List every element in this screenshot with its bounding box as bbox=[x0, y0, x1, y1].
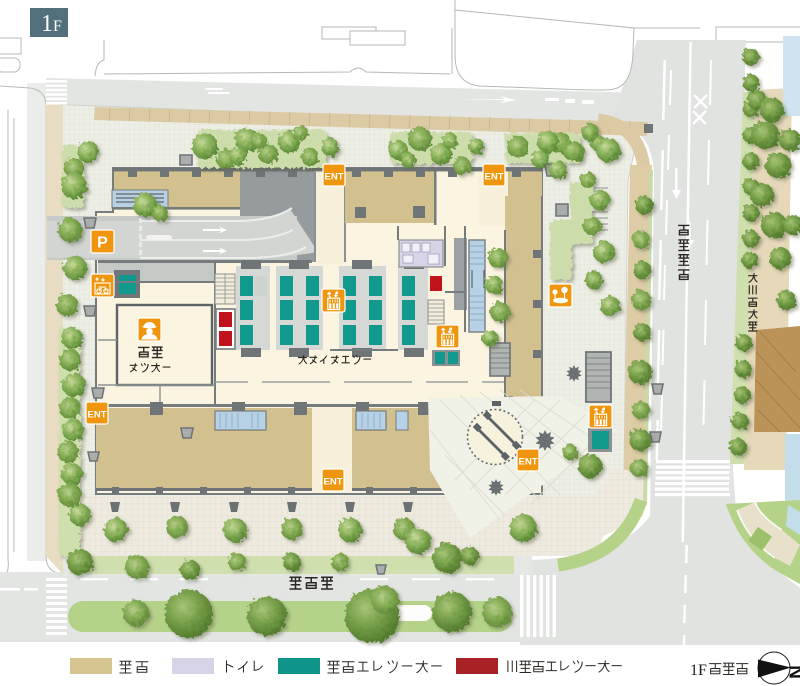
svg-text:P: P bbox=[97, 235, 108, 252]
svg-text:ENT: ENT bbox=[88, 410, 107, 421]
svg-text:ENT: ENT bbox=[519, 457, 538, 468]
svg-text:ENT: ENT bbox=[485, 172, 504, 183]
svg-text:ENT: ENT bbox=[325, 172, 344, 183]
svg-text:ENT: ENT bbox=[324, 477, 343, 488]
svg-text:1F: 1F bbox=[690, 662, 707, 679]
svg-text:N: N bbox=[787, 665, 800, 679]
